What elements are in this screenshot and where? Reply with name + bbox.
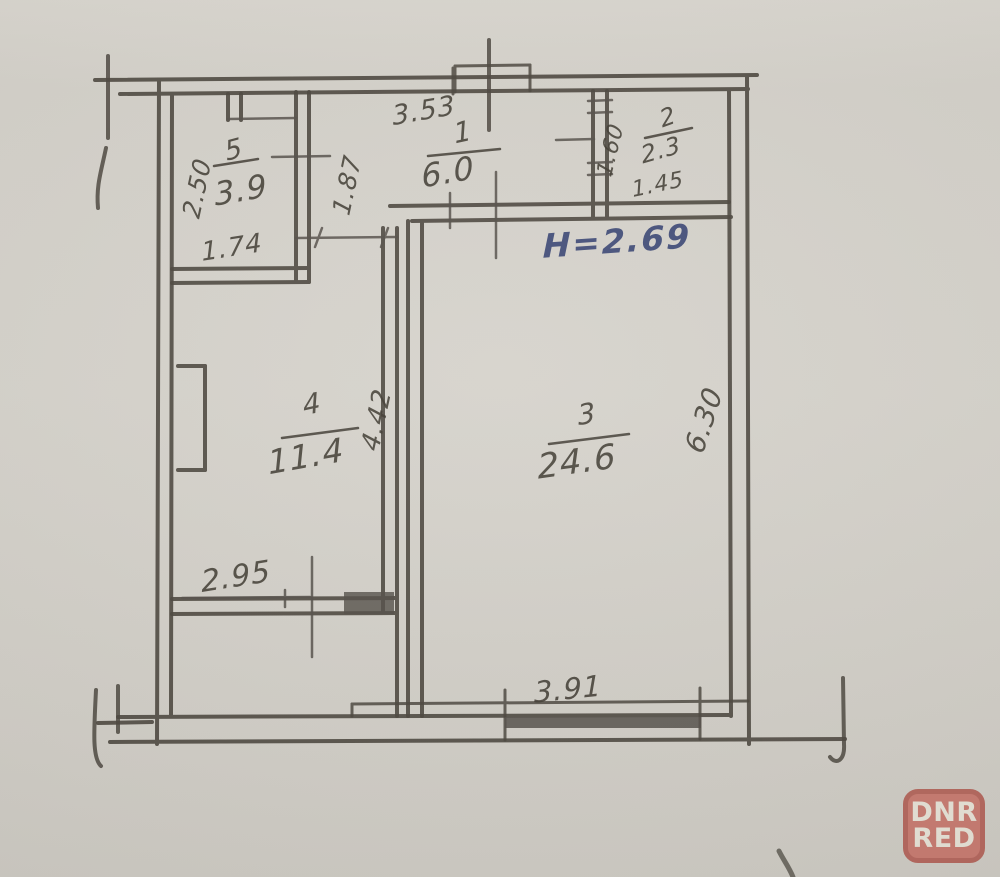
window-band <box>505 717 701 728</box>
floorplan-drawing <box>0 0 1000 877</box>
watermark-line-2: RED <box>912 826 975 852</box>
floorplan-photo: 5 3.9 2.50 1.74 3.53 1 6.0 1.87 2 2.3 1.… <box>0 0 1000 877</box>
room-3-number-label: 3 <box>576 396 597 432</box>
room-1-number-label: 1 <box>452 114 474 151</box>
door-block <box>344 592 394 614</box>
pen-mark <box>779 851 793 877</box>
windows <box>352 65 748 740</box>
room-4-number-label: 4 <box>301 386 323 423</box>
dim-label-3-91: 3.91 <box>534 668 603 709</box>
dnr-red-watermark: DNR RED <box>903 789 985 863</box>
